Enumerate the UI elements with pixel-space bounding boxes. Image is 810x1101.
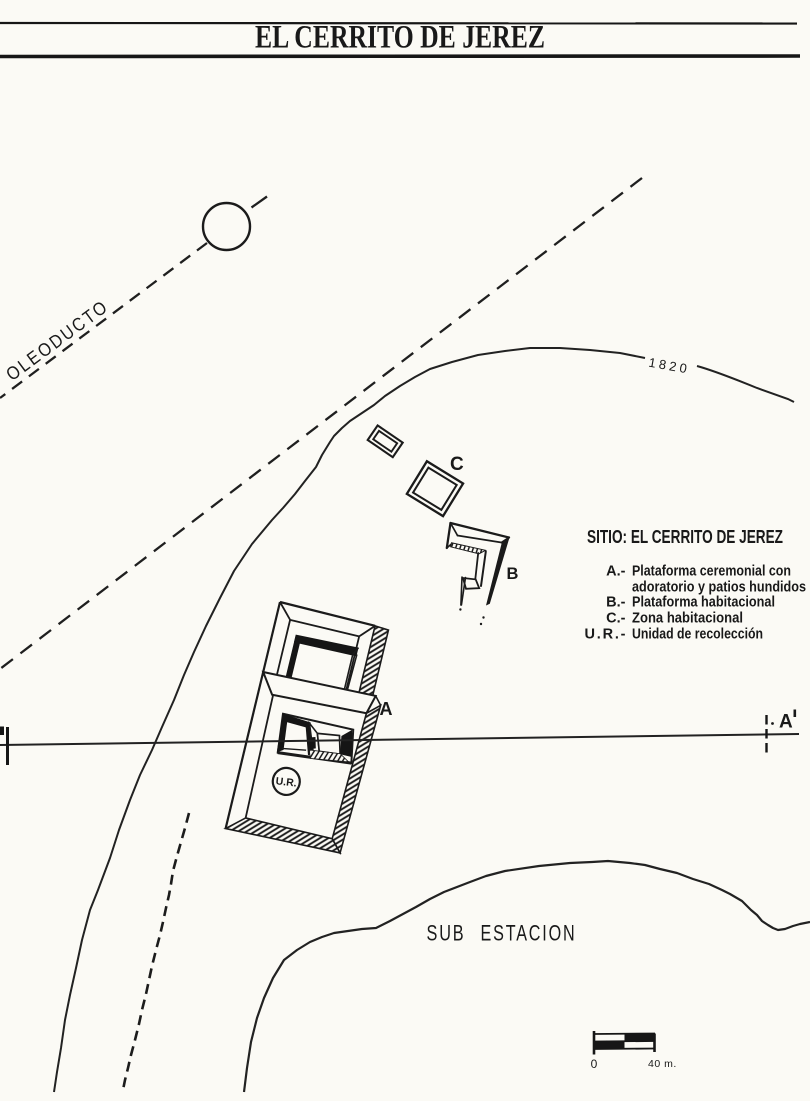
svg-text:adoratorio y patios hundidos: adoratorio y patios hundidos <box>632 580 806 596</box>
svg-text:Zona habitacional: Zona habitacional <box>632 611 743 627</box>
svg-text:C: C <box>450 454 464 475</box>
svg-text:C.-: C.- <box>606 611 626 627</box>
svg-text:40 m.: 40 m. <box>648 1058 677 1070</box>
svg-text:B.-: B.- <box>606 595 626 611</box>
svg-text:U.R.: U.R. <box>275 775 297 789</box>
svg-text:Unidad de recolección: Unidad de recolección <box>632 627 763 643</box>
svg-text:0: 0 <box>591 1057 598 1071</box>
svg-text:A: A <box>380 699 393 719</box>
svg-text:Plataforma ceremonial con: Plataforma ceremonial con <box>632 564 791 580</box>
svg-text:ESTACION: ESTACION <box>481 921 577 946</box>
svg-text:B: B <box>507 565 519 583</box>
svg-text:EL CERRITO DE JEREZ: EL CERRITO DE JEREZ <box>255 20 545 56</box>
svg-text:A: A <box>779 712 793 733</box>
svg-text:SUB: SUB <box>427 921 466 946</box>
svg-text:A.-: A.- <box>606 564 626 580</box>
svg-text:SITIO: EL CERRITO DE JEREZ: SITIO: EL CERRITO DE JEREZ <box>587 526 783 547</box>
svg-text:Plataforma habitacional: Plataforma habitacional <box>632 595 775 611</box>
